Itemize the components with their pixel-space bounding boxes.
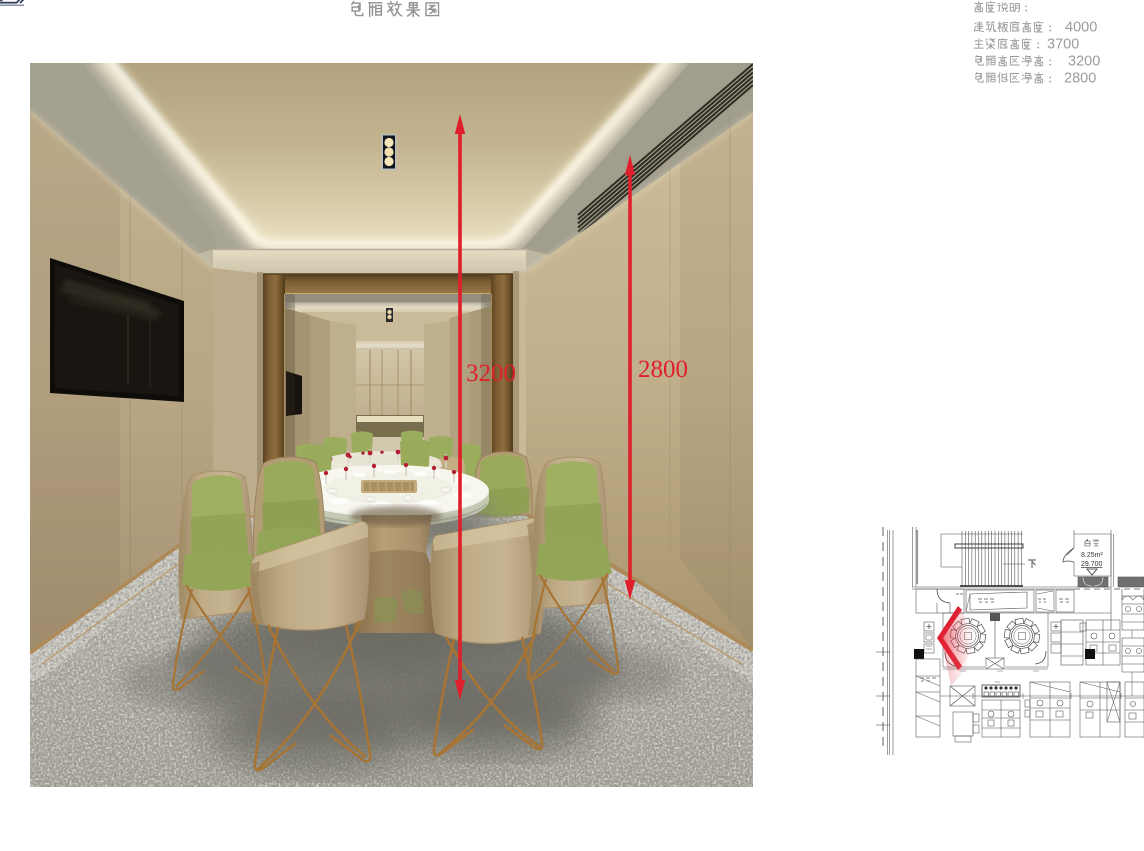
- svg-text:3700: 3700: [1047, 37, 1079, 53]
- svg-text:2800: 2800: [1064, 71, 1096, 87]
- svg-text:3200: 3200: [466, 360, 516, 387]
- svg-text:29.700: 29.700: [1081, 561, 1103, 568]
- svg-text:3200: 3200: [1068, 54, 1100, 70]
- svg-text:8.25m²: 8.25m²: [1081, 552, 1103, 559]
- svg-text:4000: 4000: [1065, 20, 1097, 36]
- svg-text:2800: 2800: [638, 356, 688, 383]
